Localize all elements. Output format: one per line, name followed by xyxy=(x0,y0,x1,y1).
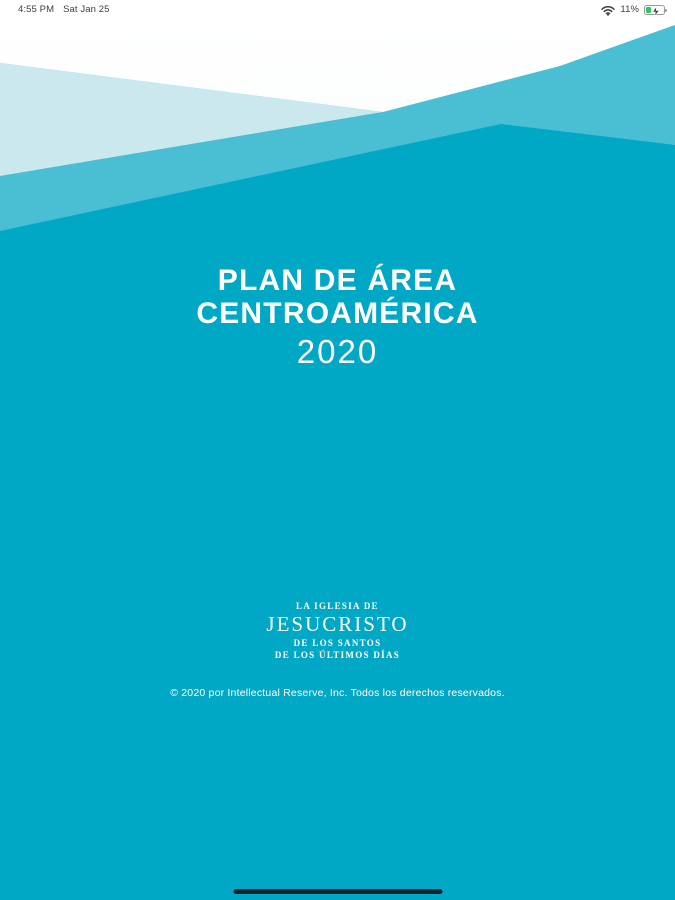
church-logo-line1: LA IGLESIA DE xyxy=(0,600,675,612)
church-logo-line4: DE LOS ÚLTIMOS DÍAS xyxy=(0,649,675,661)
home-indicator[interactable] xyxy=(233,889,442,894)
battery-fill xyxy=(646,7,651,13)
wifi-icon xyxy=(601,5,615,16)
status-bar-right: 11% xyxy=(601,0,665,20)
clock-label: 4:55 PM xyxy=(18,0,54,20)
battery-cap xyxy=(665,9,667,13)
cover-year: 2020 xyxy=(0,333,675,371)
church-logo-name: JESUCRISTO xyxy=(0,613,675,636)
document-cover-page[interactable]: PLAN DE ÁREA CENTROAMÉRICA 2020 LA IGLES… xyxy=(0,20,675,900)
cover-title-block: PLAN DE ÁREA CENTROAMÉRICA 2020 xyxy=(0,264,675,371)
status-bar-left: 4:55 PM Sat Jan 25 xyxy=(18,0,110,20)
date-label: Sat Jan 25 xyxy=(63,0,109,20)
copyright-notice: © 2020 por Intellectual Reserve, Inc. To… xyxy=(0,687,675,700)
cover-title-line2: CENTROAMÉRICA xyxy=(0,297,675,330)
church-logo: LA IGLESIA DE JESUCRISTO DE LOS SANTOS D… xyxy=(0,600,675,661)
status-bar: 4:55 PM Sat Jan 25 11% xyxy=(0,0,675,20)
church-logo-line3: DE LOS SANTOS xyxy=(0,638,675,649)
battery-charging-icon xyxy=(644,5,665,15)
charging-bolt-icon xyxy=(652,6,660,17)
battery-percent-label: 11% xyxy=(620,0,639,20)
cover-title-line1: PLAN DE ÁREA xyxy=(0,264,675,297)
